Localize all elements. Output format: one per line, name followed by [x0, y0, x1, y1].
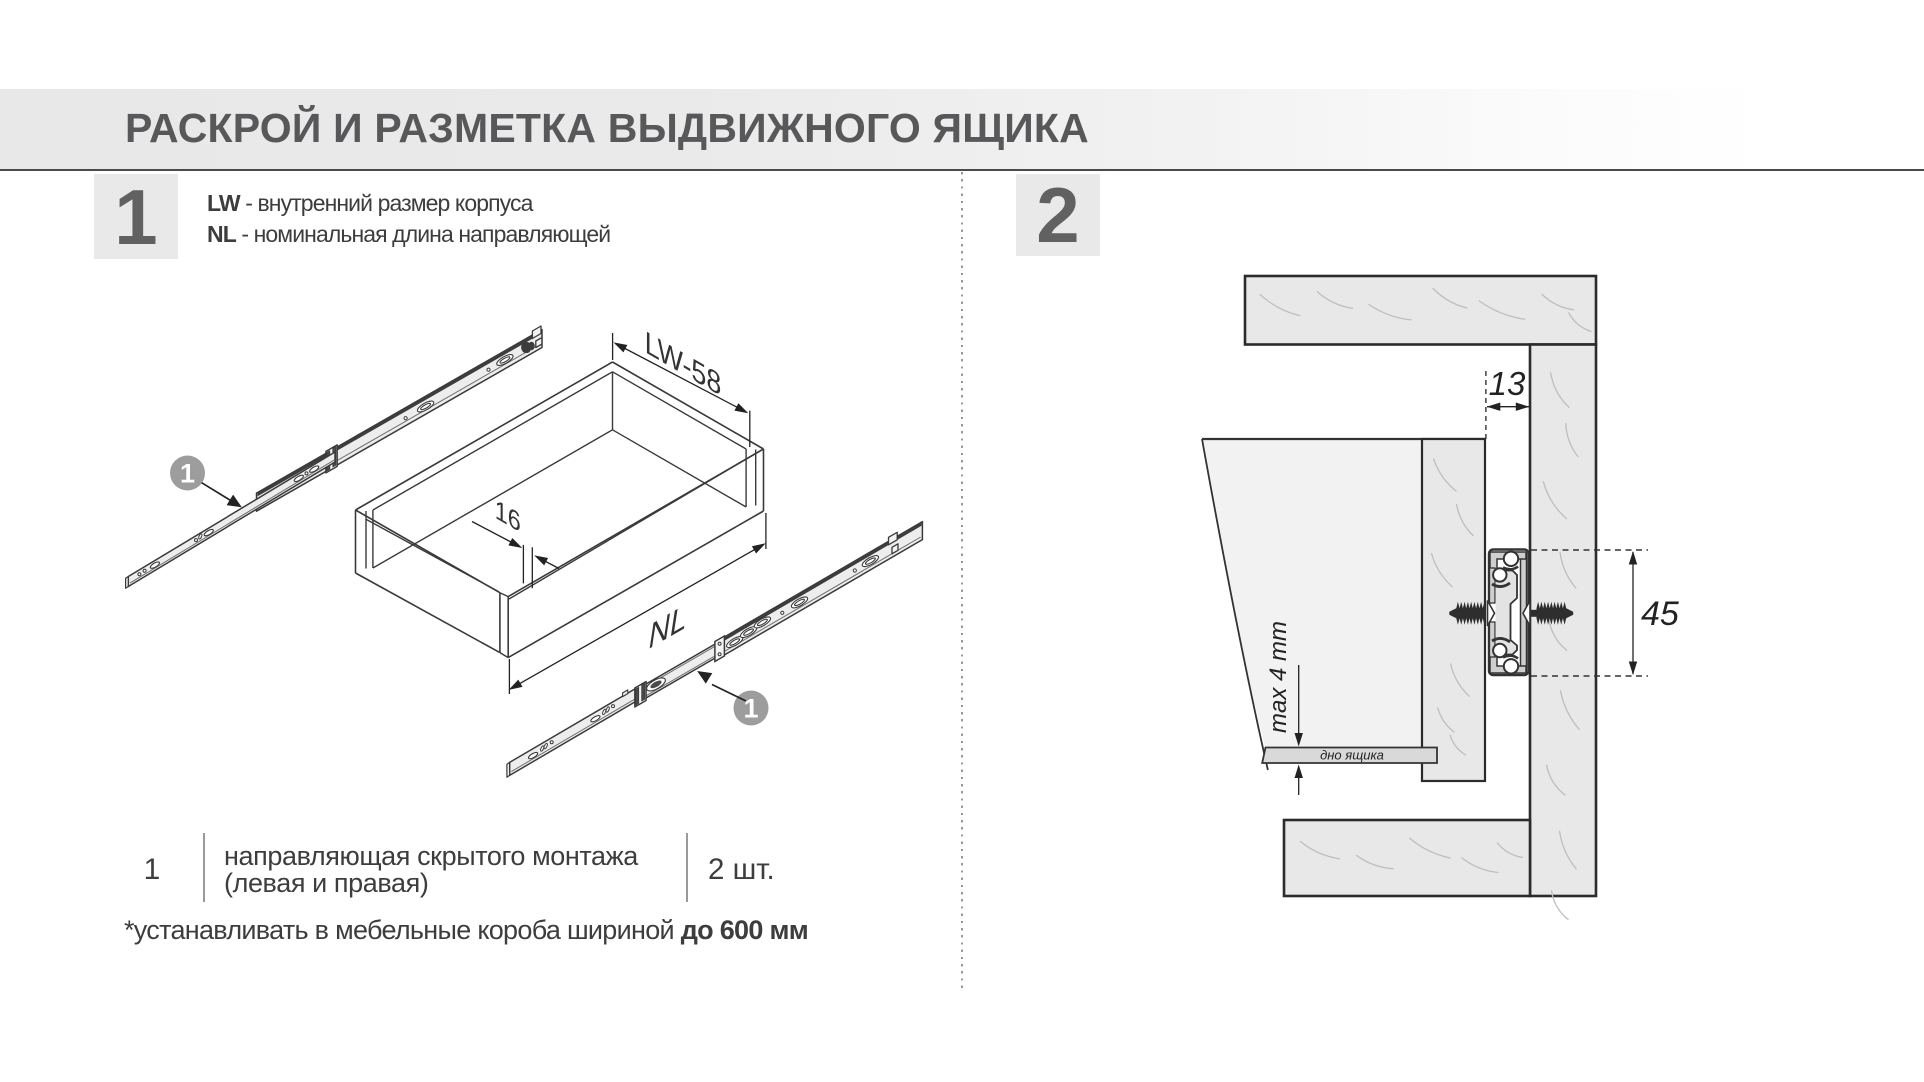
svg-text:1: 1 — [743, 694, 758, 724]
svg-text:13: 13 — [1489, 365, 1526, 402]
svg-text:1: 1 — [180, 459, 195, 489]
svg-text:дно ящика: дно ящика — [1320, 748, 1384, 763]
svg-text:45: 45 — [1641, 595, 1679, 633]
svg-text:max 4 mm: max 4 mm — [1265, 621, 1292, 733]
